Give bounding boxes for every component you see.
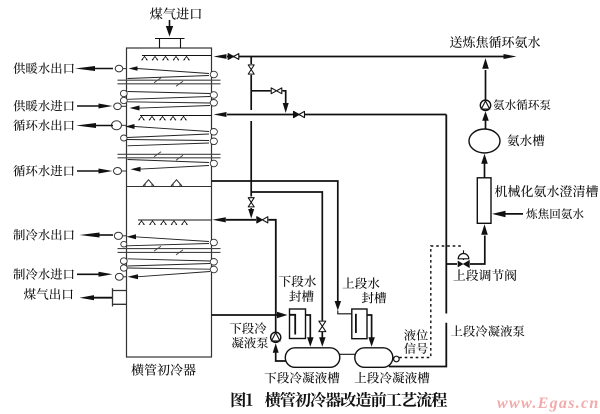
svg-text:www.Egas.cn: www.Egas.cn [497, 395, 600, 412]
